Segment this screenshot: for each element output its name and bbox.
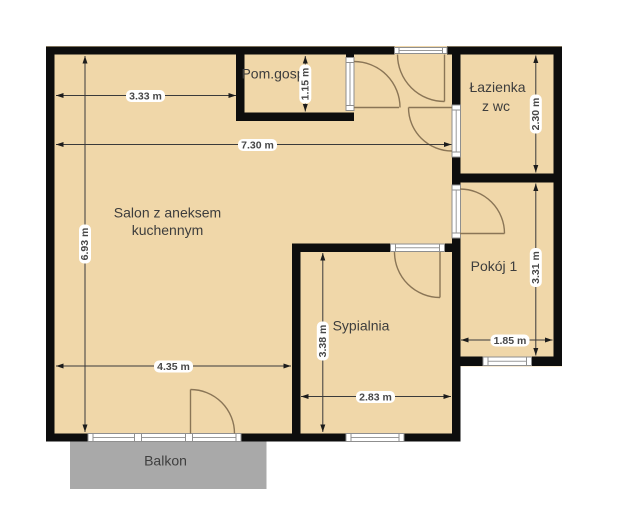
svg-text:Łazienka: Łazienka [469, 79, 525, 95]
svg-text:kuchennym: kuchennym [132, 222, 204, 238]
svg-text:4.35 m: 4.35 m [157, 361, 190, 373]
svg-text:6.93 m: 6.93 m [79, 228, 91, 261]
svg-text:7.30 m: 7.30 m [241, 140, 274, 152]
svg-text:1.15 m: 1.15 m [299, 68, 311, 101]
svg-text:Pom.gosp: Pom.gosp [241, 66, 304, 82]
svg-text:2.30 m: 2.30 m [530, 98, 542, 131]
svg-text:Salon z aneksem: Salon z aneksem [114, 205, 221, 221]
svg-text:1.85 m: 1.85 m [494, 335, 527, 347]
svg-text:2.83 m: 2.83 m [359, 392, 392, 404]
svg-text:3.33 m: 3.33 m [129, 91, 162, 103]
svg-text:Sypialnia: Sypialnia [333, 318, 390, 334]
svg-text:3.38 m: 3.38 m [317, 325, 329, 358]
svg-text:Pokój 1: Pokój 1 [471, 258, 518, 274]
svg-text:3.31 m: 3.31 m [530, 251, 542, 284]
svg-text:z wc: z wc [482, 98, 510, 114]
svg-text:Balkon: Balkon [144, 453, 187, 469]
